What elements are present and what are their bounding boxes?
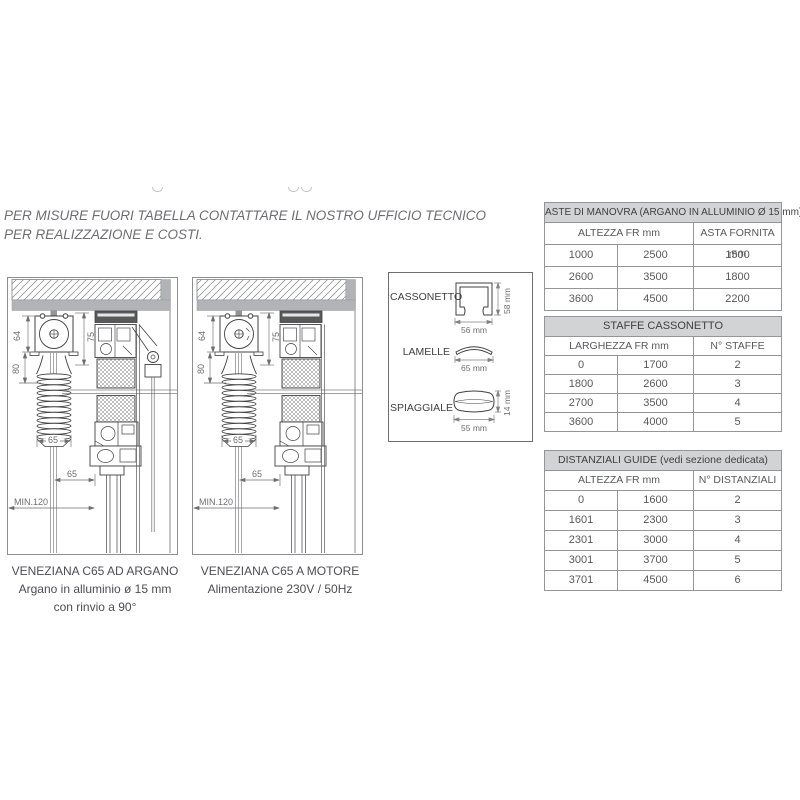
table-cell: 0 bbox=[545, 491, 618, 510]
table-header-row: ALTEZZA FR mm N° DISTANZIALI bbox=[545, 471, 781, 491]
table-cell: 1500 bbox=[694, 245, 781, 266]
table-row: 1800 2600 3 bbox=[545, 375, 781, 394]
table-cell: 5 bbox=[694, 551, 781, 570]
table-row: 1000 2500 1500 bbox=[545, 245, 781, 267]
profile-label-cassonetto: CASSONETTO bbox=[390, 291, 450, 303]
cassonetto-width-dim: 56 mm bbox=[450, 325, 498, 335]
table-cell: 2200 bbox=[694, 289, 781, 310]
dim-65-offset-label: 65 bbox=[252, 469, 262, 479]
spiaggiale-width-dim: 55 mm bbox=[450, 423, 498, 433]
caption-argano: VENEZIANA C65 AD ARGANO Argano in allumi… bbox=[5, 562, 185, 616]
table-title: STAFFE CASSONETTO bbox=[545, 317, 781, 337]
dim-75-label: 75 bbox=[271, 332, 281, 342]
table-cell: 3700 bbox=[618, 551, 694, 570]
catalog-page: { "note": "PER MISURE FUORI TABELLA CONT… bbox=[0, 0, 800, 800]
dim-64-label: 64 bbox=[197, 331, 207, 341]
table-cell: 2 bbox=[694, 356, 781, 374]
col-header-altezza: ALTEZZA FR mm bbox=[545, 471, 694, 490]
caption-motore-title: VENEZIANA C65 A MOTORE bbox=[190, 562, 370, 580]
table-row: 0 1600 2 bbox=[545, 491, 781, 511]
caption-argano-sub1: Argano in alluminio ø 15 mm bbox=[5, 580, 185, 598]
table-title: DISTANZIALI GUIDE (vedi sezione dedicata… bbox=[545, 451, 781, 471]
table-row: 3600 4500 2200 bbox=[545, 289, 781, 310]
table-cell: 3 bbox=[694, 375, 781, 393]
table-cell: 1601 bbox=[545, 511, 618, 530]
table-cell: 5 bbox=[694, 413, 781, 431]
table-cell: 4 bbox=[694, 394, 781, 412]
dim-80-label: 80 bbox=[11, 364, 21, 374]
table-row: 2700 3500 4 bbox=[545, 394, 781, 413]
lamelle-width-dim: 65 mm bbox=[450, 363, 498, 373]
cropped-text-remnant bbox=[301, 187, 312, 192]
table-cell: 1800 bbox=[694, 267, 781, 288]
table-cell: 2500 bbox=[618, 245, 694, 266]
table-cell: 3000 bbox=[618, 531, 694, 550]
table-row: 3001 3700 5 bbox=[545, 551, 781, 571]
table-cell: 1000 bbox=[545, 245, 618, 266]
diagram-veneziana-motore: 64 75 80 65 65 MIN.120 bbox=[190, 270, 370, 560]
table-cell: 2 bbox=[694, 491, 781, 510]
table-row: 0 1700 2 bbox=[545, 356, 781, 375]
table-row: 3600 4000 5 bbox=[545, 413, 781, 431]
table-cell: 3001 bbox=[545, 551, 618, 570]
table-row: 2301 3000 4 bbox=[545, 531, 781, 551]
table-cell: 6 bbox=[694, 571, 781, 590]
table-cell: 4500 bbox=[618, 571, 694, 590]
dim-min120-label: MIN.120 bbox=[14, 497, 48, 507]
table-cell: 4000 bbox=[618, 413, 694, 431]
diagram-motore-drawing bbox=[190, 270, 370, 565]
table-cell: 3600 bbox=[545, 289, 618, 310]
caption-argano-sub2: con rinvio a 90° bbox=[5, 598, 185, 616]
cropped-text-remnant bbox=[288, 187, 299, 192]
table-cell: 3500 bbox=[618, 267, 694, 288]
dim-80-label: 80 bbox=[196, 364, 206, 374]
col-header-larghezza: LARGHEZZA FR mm bbox=[545, 337, 694, 355]
caption-argano-title: VENEZIANA C65 AD ARGANO bbox=[5, 562, 185, 580]
col-header-staffe: N° STAFFE bbox=[694, 337, 781, 355]
table-aste-di-manovra: ASTE DI MANOVRA (ARGANO IN ALLUMINIO Ø 1… bbox=[544, 202, 782, 311]
cropped-text-remnant bbox=[152, 187, 163, 192]
col-header-distanziali: N° DISTANZIALI bbox=[694, 471, 781, 490]
table-row: 1601 2300 3 bbox=[545, 511, 781, 531]
table-cell: 3 bbox=[694, 511, 781, 530]
dim-65-coil-label: 65 bbox=[231, 435, 245, 445]
table-header-row: LARGHEZZA FR mm N° STAFFE bbox=[545, 337, 781, 356]
table-cell: 1800 bbox=[545, 375, 618, 393]
profile-label-lamelle: LAMELLE bbox=[390, 346, 450, 358]
dim-75-label: 75 bbox=[86, 332, 96, 342]
col-header-asta: ASTA FORNITA mm bbox=[694, 223, 781, 244]
cassonetto-height-dim: 58 mm bbox=[502, 288, 512, 314]
diagram-argano-drawing bbox=[5, 270, 185, 565]
table-cell: 1600 bbox=[618, 491, 694, 510]
table-title: ASTE DI MANOVRA (ARGANO IN ALLUMINIO Ø 1… bbox=[545, 203, 781, 223]
dim-min120-label: MIN.120 bbox=[199, 497, 233, 507]
diagram-veneziana-argano: 64 75 80 65 65 MIN.120 bbox=[5, 270, 185, 560]
table-cell: 3500 bbox=[618, 394, 694, 412]
profiles-box: CASSONETTO LAMELLE SPIAGGIALE 58 mm 56 m… bbox=[388, 272, 533, 442]
table-cell: 4500 bbox=[618, 289, 694, 310]
table-cell: 0 bbox=[545, 356, 618, 374]
table-cell: 3701 bbox=[545, 571, 618, 590]
table-distanziali-guide: DISTANZIALI GUIDE (vedi sezione dedicata… bbox=[544, 450, 782, 591]
caption-motore: VENEZIANA C65 A MOTORE Alimentazione 230… bbox=[190, 562, 370, 598]
col-header-altezza: ALTEZZA FR mm bbox=[545, 223, 694, 244]
caption-motore-sub1: Alimentazione 230V / 50Hz bbox=[190, 580, 370, 598]
dim-65-offset-label: 65 bbox=[67, 469, 77, 479]
table-cell: 2700 bbox=[545, 394, 618, 412]
table-cell: 2600 bbox=[545, 267, 618, 288]
table-cell: 2301 bbox=[545, 531, 618, 550]
note-text: PER MISURE FUORI TABELLA CONTATTARE IL N… bbox=[4, 206, 504, 244]
table-row: 3701 4500 6 bbox=[545, 571, 781, 590]
table-row: 2600 3500 1800 bbox=[545, 267, 781, 289]
table-cell: 3600 bbox=[545, 413, 618, 431]
table-header-row: ALTEZZA FR mm ASTA FORNITA mm bbox=[545, 223, 781, 245]
table-cell: 1700 bbox=[618, 356, 694, 374]
dim-64-label: 64 bbox=[12, 331, 22, 341]
dim-65-coil-label: 65 bbox=[46, 435, 60, 445]
table-cell: 2300 bbox=[618, 511, 694, 530]
table-cell: 4 bbox=[694, 531, 781, 550]
profile-label-spiaggiale: SPIAGGIALE bbox=[390, 402, 450, 414]
table-staffe-cassonetto: STAFFE CASSONETTO LARGHEZZA FR mm N° STA… bbox=[544, 316, 782, 432]
spiaggiale-height-dim: 14 mm bbox=[502, 390, 512, 416]
table-cell: 2600 bbox=[618, 375, 694, 393]
